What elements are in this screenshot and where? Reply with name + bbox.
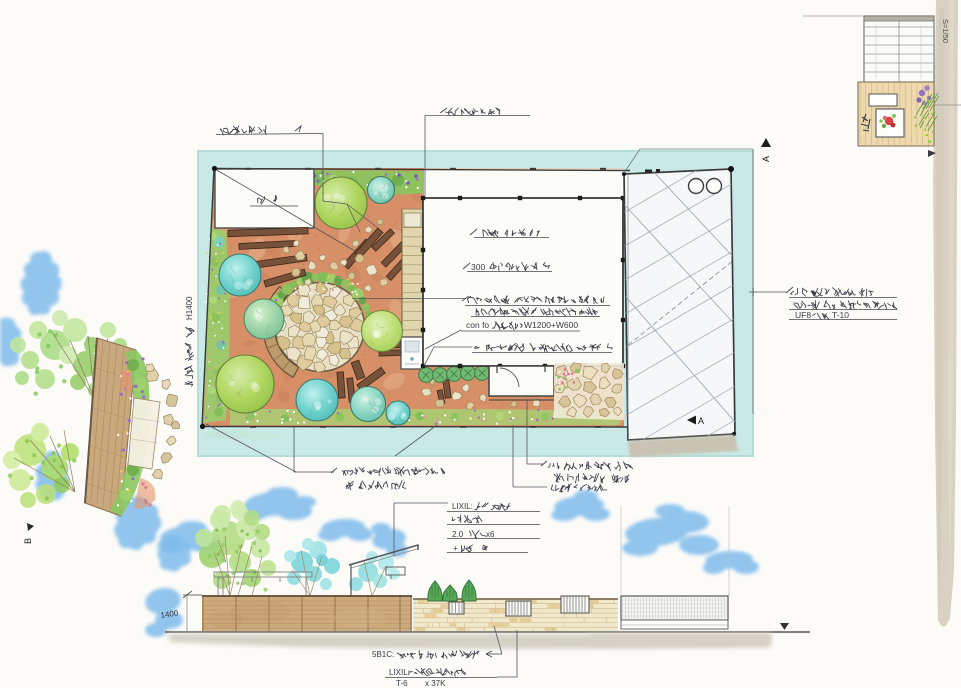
- svg-text:UF8: UF8: [795, 310, 811, 320]
- svg-text:LIXIL:: LIXIL:: [452, 502, 473, 511]
- svg-text:con fo: con fo: [466, 320, 489, 330]
- svg-text:B: B: [23, 538, 33, 544]
- svg-text:x6: x6: [486, 530, 495, 539]
- svg-text:T-6: T-6: [396, 679, 408, 688]
- svg-text:H1400: H1400: [185, 296, 194, 320]
- svg-text:W1200+W600: W1200+W600: [524, 320, 578, 330]
- svg-text:A: A: [698, 416, 704, 426]
- svg-text:T-10: T-10: [832, 310, 849, 320]
- svg-text:x 37K: x 37K: [425, 679, 446, 688]
- svg-text:A: A: [761, 156, 771, 162]
- svg-text:5B1C:: 5B1C:: [372, 650, 394, 659]
- svg-text:300: 300: [471, 262, 485, 272]
- svg-text:2.0: 2.0: [452, 530, 464, 539]
- svg-text:+: +: [453, 544, 458, 553]
- svg-text:LIXIL:: LIXIL:: [389, 668, 410, 677]
- svg-text:S=1/50: S=1/50: [941, 19, 950, 43]
